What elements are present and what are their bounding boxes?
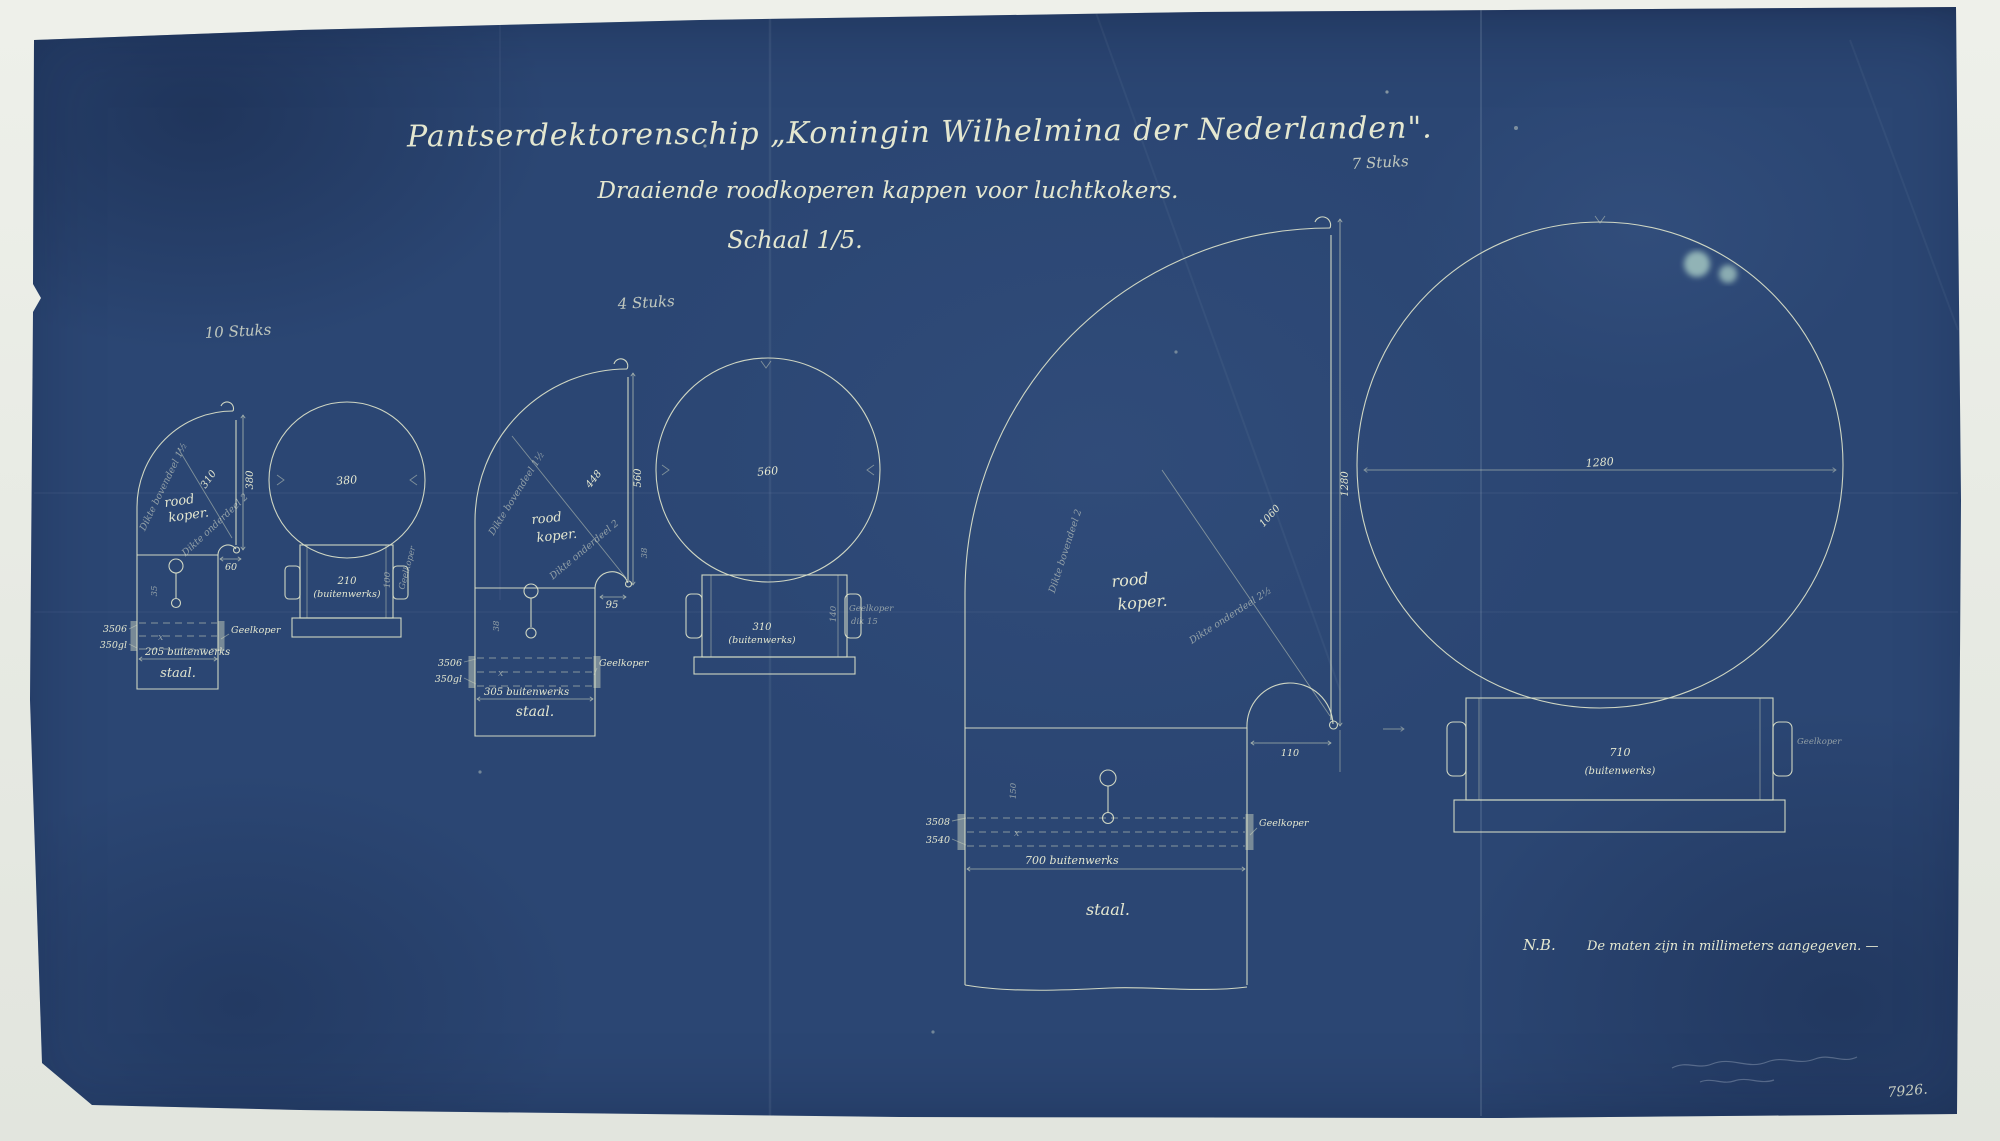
- left-cowl-curl: [221, 402, 234, 411]
- middle-material-label-1: rood: [531, 510, 563, 528]
- right-top-diameter-dim: 1280: [1585, 455, 1614, 470]
- page-title: Pantserdektorenschip „Koningin Wilhelmin…: [406, 111, 1433, 155]
- middle-band-dim-a: 3506: [438, 658, 462, 669]
- left-front-diameter-dim: 210: [336, 576, 357, 587]
- right-band-tab: [1246, 814, 1254, 850]
- left-side-view: rood koper. 380 310 Dikte bovendeel 1½ D…: [100, 402, 282, 689]
- middle-width-dim: 305 buitenwerks: [484, 687, 569, 698]
- middle-diagonal-dim: 448: [583, 469, 604, 492]
- right-cylinder-handle: [1447, 722, 1466, 776]
- middle-front-side-dim: 140: [829, 605, 839, 622]
- right-side-view: rood koper. 1280 1060 Dikte bovendeel 2 …: [926, 217, 1404, 990]
- middle-x-mark: x: [498, 668, 504, 679]
- middle-cylinder-handle: [686, 594, 702, 638]
- left-front-side-dim: 100: [383, 571, 393, 588]
- note-prefix: N.B.: [1522, 936, 1556, 954]
- footer: N.B. De maten zijn in millimeters aangeg…: [1522, 936, 1928, 1101]
- right-band-dim-a: 3508: [926, 817, 950, 828]
- left-front-diameter-note: (buitenwerks): [313, 589, 380, 600]
- middle-band-dim-b: 350gl: [435, 674, 462, 685]
- right-band-dim-b: 3540: [926, 835, 950, 846]
- left-cylinder-handle: [285, 566, 300, 599]
- signature-scribble: [1672, 1057, 1857, 1082]
- right-front-view: 710 (buitenwerks) Geelkoper: [1447, 698, 1842, 832]
- left-x-mark: x: [158, 632, 164, 643]
- middle-top-view: 560: [656, 358, 880, 582]
- middle-front-side-material: Geelkoper: [849, 604, 894, 614]
- quantity-label-right: 7 Stuks: [1351, 152, 1409, 173]
- scale-label: Schaal 1/5.: [727, 226, 863, 254]
- paper-stains: [478, 90, 1737, 1033]
- middle-cowl-curl: [614, 359, 628, 369]
- left-front-side-material: Geelkoper: [397, 544, 418, 590]
- note-text: De maten zijn in millimeters aangegeven.…: [1586, 939, 1878, 954]
- middle-front-view: 310 (buitenwerks) 140 Geelkoper dik 15: [686, 575, 894, 674]
- left-diagonal-dim: 310: [199, 468, 219, 490]
- photo-backing: Pantserdektorenschip „Koningin Wilhelmin…: [0, 0, 2000, 1141]
- drawing-canvas: Pantserdektorenschip „Koningin Wilhelmin…: [0, 0, 2000, 1141]
- right-height-dim: 1280: [1340, 471, 1351, 497]
- right-top-view: 1280: [1357, 216, 1843, 708]
- middle-front-diameter-note: (buitenwerks): [728, 635, 795, 646]
- right-diagonal-dim: 1060: [1258, 503, 1284, 530]
- right-band-material-label: Geelkoper: [1259, 818, 1310, 829]
- right-spindle-dim: 150: [1009, 782, 1019, 799]
- right-width-dim: 700 buitenwerks: [1025, 854, 1119, 867]
- right-front-diameter-note: (buitenwerks): [1585, 766, 1656, 777]
- left-band-dim-b: 350gl: [100, 640, 127, 651]
- right-cylinder-handle: [1773, 722, 1792, 776]
- middle-top-diameter-dim: 560: [757, 464, 779, 479]
- left-top-diameter-dim: 380: [336, 473, 358, 488]
- right-front-side-material: Geelkoper: [1797, 737, 1842, 747]
- quantity-label-left: 10 Stuks: [204, 321, 272, 342]
- left-spindle-dim: 35: [150, 586, 160, 597]
- middle-fillet-side-dim: 38: [640, 547, 650, 558]
- middle-band-material-label: Geelkoper: [599, 658, 650, 669]
- right-thickness-top-label: Dikte bovendeel 2: [1047, 508, 1085, 595]
- sheet-number: 7926.: [1887, 1082, 1928, 1101]
- right-base-material-label: staal.: [1086, 900, 1130, 919]
- quantity-label-middle: 4 Stuks: [616, 292, 675, 313]
- right-material-label-2: koper.: [1117, 591, 1168, 614]
- right-fillet-dim: 110: [1281, 748, 1299, 759]
- right-front-diameter-dim: 710: [1610, 746, 1631, 759]
- right-material-label-1: rood: [1111, 569, 1150, 591]
- left-base-material-label: staal.: [160, 666, 196, 681]
- left-top-view: 380: [269, 402, 425, 558]
- page-subtitle: Draaiende roodkoperen kappen voor luchtk…: [597, 178, 1179, 204]
- middle-height-dim: 560: [633, 468, 644, 488]
- middle-fillet-dim: 95: [606, 600, 619, 611]
- middle-front-diameter-dim: 310: [752, 622, 772, 633]
- left-width-dim: 205 buitenwerks: [144, 647, 230, 658]
- left-fillet-dim: 60: [225, 562, 237, 573]
- middle-front-side-note: dik 15: [851, 617, 878, 627]
- left-band-dim-a: 3506: [103, 624, 127, 635]
- middle-side-view: rood koper. 560 448 Dikte bovendeel 1½ D…: [435, 359, 650, 736]
- right-thickness-bottom-label: Dikte onderdeel 2½: [1187, 585, 1274, 647]
- left-height-dim: 380: [245, 470, 256, 490]
- right-x-mark: x: [1014, 828, 1020, 839]
- middle-spindle-dim: 38: [492, 620, 502, 631]
- right-cowl-curl: [1315, 217, 1331, 228]
- blueprint-sheet: Pantserdektorenschip „Koningin Wilhelmin…: [0, 0, 2000, 1141]
- header: Pantserdektorenschip „Koningin Wilhelmin…: [204, 111, 1433, 342]
- left-band-material-label: Geelkoper: [231, 625, 282, 636]
- middle-base-material-label: staal.: [516, 704, 554, 720]
- middle-material-label-2: koper.: [536, 527, 578, 546]
